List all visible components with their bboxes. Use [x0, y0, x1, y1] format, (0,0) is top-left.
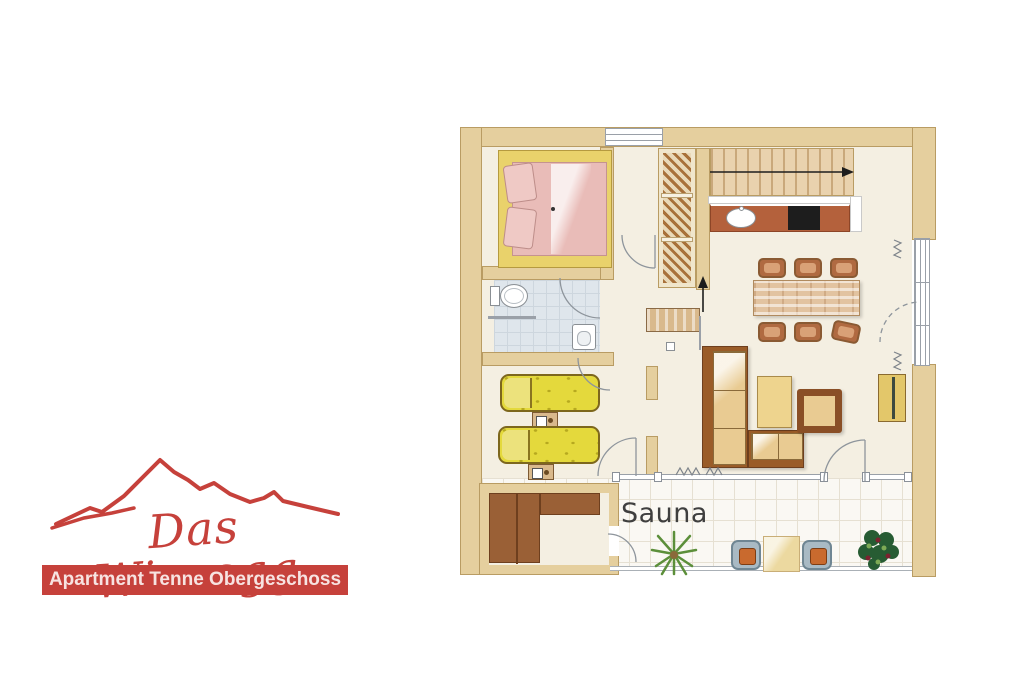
coffee-table: [757, 376, 792, 428]
sofa-cushions: [751, 433, 803, 460]
sauna-bench-left: [489, 493, 540, 563]
chair-pad: [764, 327, 780, 337]
bath-sink: [572, 324, 596, 350]
sofa-cushions: [713, 351, 746, 465]
wall-right-bottom: [912, 364, 936, 577]
nightstand-detail: [532, 468, 543, 479]
toilet-tank: [490, 286, 500, 306]
staircase: [710, 148, 854, 196]
sauna-bench-top: [540, 493, 600, 515]
logo: Das Wiesegg Apartment Tenne Obergeschoss: [40, 450, 352, 600]
banner: Apartment Tenne Obergeschoss: [42, 565, 348, 595]
hall-dresser: [646, 308, 700, 332]
wall-left: [460, 127, 482, 575]
wall-wardrobe-right: [696, 148, 710, 290]
glass-post: [820, 472, 828, 482]
counter-end: [850, 196, 862, 232]
chair-pad: [800, 327, 816, 337]
single-bed-2: [498, 426, 600, 464]
wardrobe: [658, 148, 696, 288]
double-bed: [498, 150, 612, 268]
dining-chair: [794, 322, 822, 342]
nightstand-2: [528, 464, 554, 480]
nightstand-knob: [548, 418, 553, 423]
armchair: [797, 389, 842, 433]
sauna-label: Sauna: [621, 498, 708, 529]
pillow: [503, 162, 538, 204]
single-bed-1: [500, 374, 600, 412]
glass-post: [904, 472, 912, 482]
stove: [788, 206, 820, 230]
wardrobe-shelf: [661, 237, 693, 242]
wall-top: [460, 127, 934, 147]
wall-bedroom-bottom: [482, 266, 614, 280]
chair-seat: [739, 548, 756, 565]
sideboard-detail: [892, 377, 895, 419]
grab-bar: [488, 316, 536, 319]
bath-sink-basin: [577, 331, 591, 346]
dining-chair: [794, 258, 822, 278]
dining-table: [753, 280, 860, 316]
terrace-chair: [731, 540, 761, 570]
chair-pad: [836, 263, 852, 273]
dining-chair: [758, 258, 786, 278]
wall-bathroom-bottom: [482, 352, 614, 366]
sofa-bottom-section: [748, 430, 804, 468]
pillow: [502, 430, 530, 460]
terrace-railing: [610, 566, 912, 571]
terrace-table: [763, 536, 800, 572]
glass-post: [862, 472, 870, 482]
blanket-fold: [551, 164, 591, 254]
dining-chair: [758, 322, 786, 342]
bed-dot: [551, 207, 555, 211]
glass-post: [612, 472, 620, 482]
bench-seam: [516, 494, 518, 564]
faucet-icon: [739, 206, 744, 211]
nightstand-knob: [544, 470, 549, 475]
wardrobe-shelf: [661, 193, 693, 198]
sofa-left-section: [702, 346, 748, 468]
sauna-door-gap: [609, 526, 619, 556]
window-top: [605, 128, 663, 146]
dining-chair: [830, 258, 858, 278]
page: Das Wiesegg Apartment Tenne Obergeschoss: [0, 0, 1024, 675]
chair-pad: [764, 263, 780, 273]
kitchen-sink: [726, 208, 756, 228]
terrace-chair: [802, 540, 832, 570]
pillow: [503, 206, 538, 249]
chair-pad: [837, 325, 855, 338]
floorplan: Sauna: [458, 124, 938, 579]
toilet: [500, 284, 528, 308]
chair-pad: [800, 263, 816, 273]
sideboard: [878, 374, 906, 422]
window-right: [914, 238, 930, 366]
pillow: [504, 378, 532, 408]
glass-front: [614, 474, 824, 480]
stairwell-rail: [699, 316, 701, 350]
wall-right-top: [912, 127, 936, 240]
wardrobe-hatch: [663, 153, 691, 283]
chair-seat: [810, 548, 827, 565]
wall-switch: [666, 342, 675, 351]
glass-post: [654, 472, 662, 482]
stair-landing-edge: [708, 196, 862, 204]
wall-bedroom2-stub-top: [646, 366, 658, 400]
